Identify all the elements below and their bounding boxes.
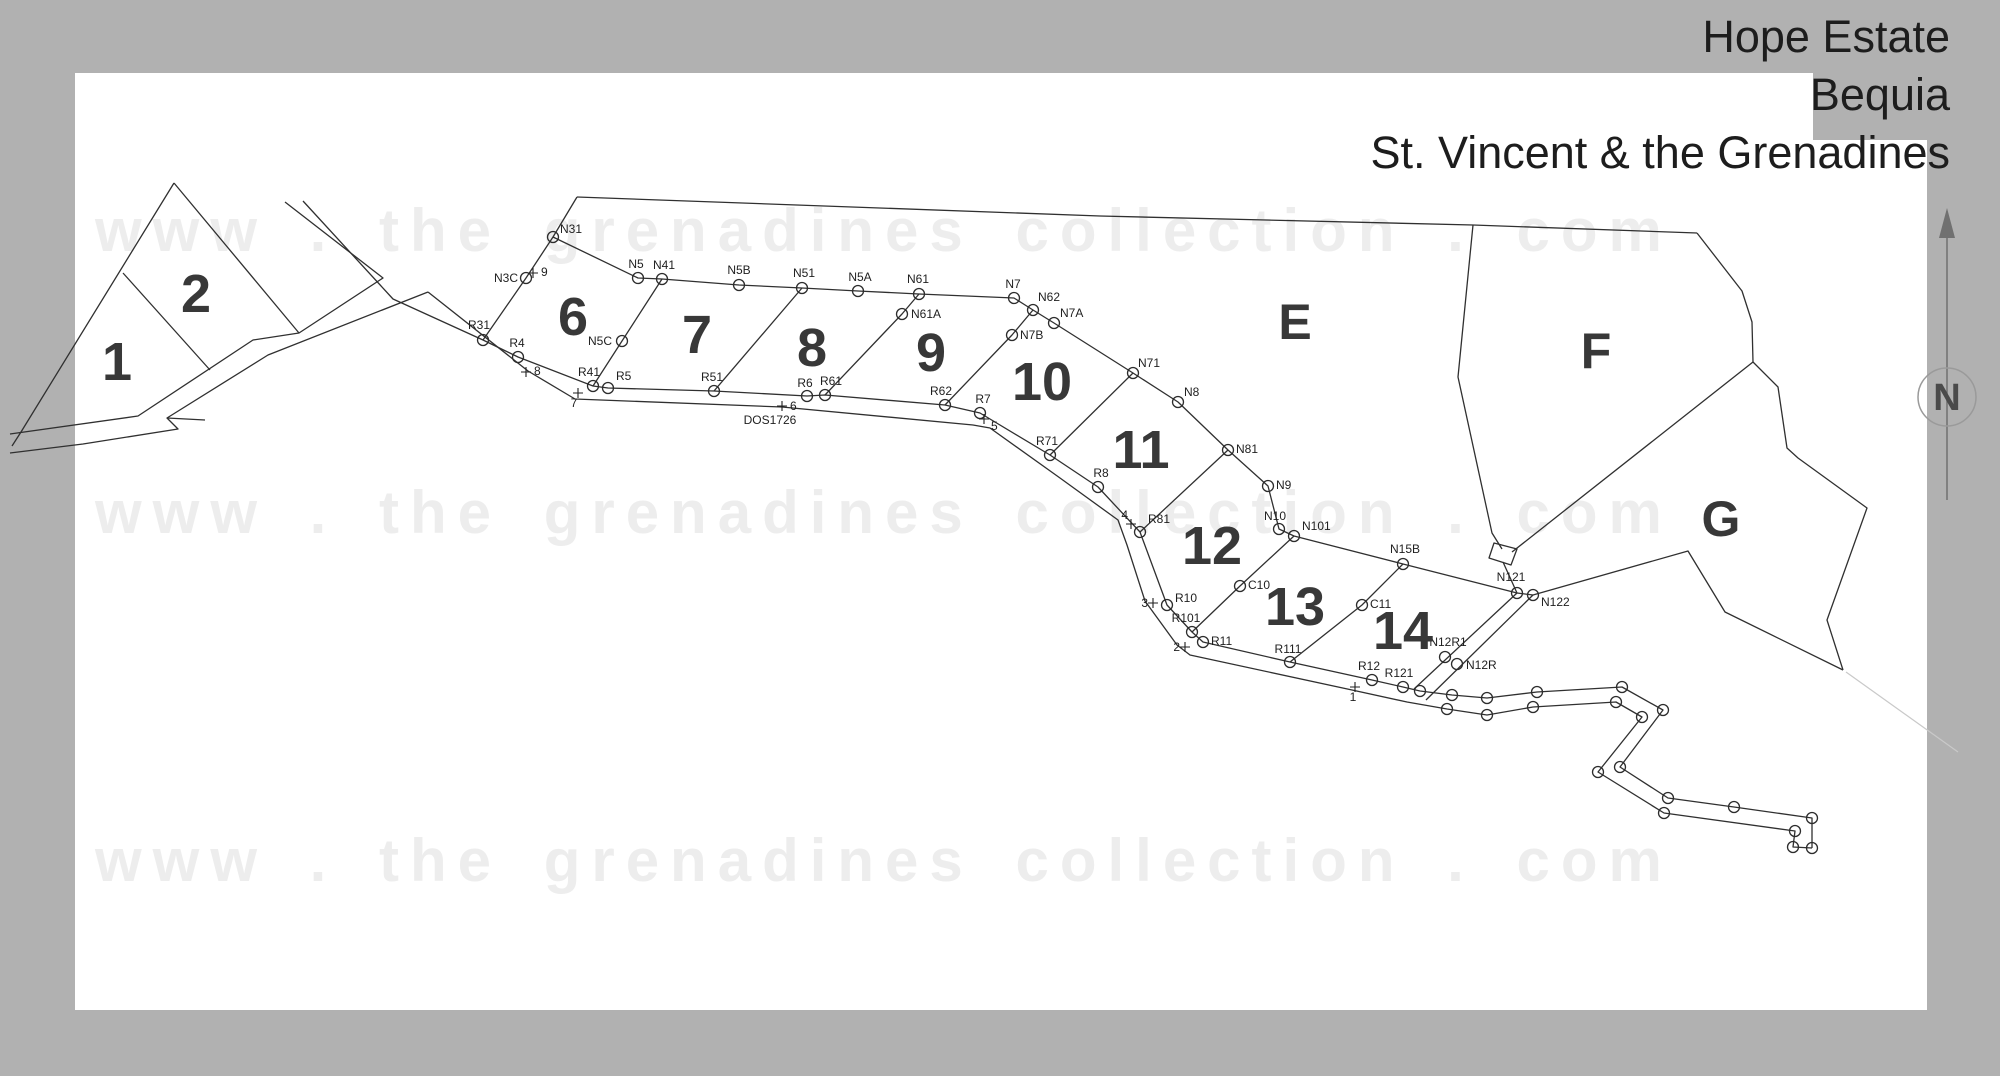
chainage-tick-icon <box>1180 642 1190 652</box>
survey-point-label: N51 <box>793 266 815 280</box>
lot-number: 12 <box>1182 516 1242 576</box>
survey-point-label: R6 <box>797 376 813 390</box>
survey-reference-label: DOS1726 <box>744 413 797 427</box>
survey-point-label: R51 <box>701 370 723 384</box>
chainage-tick-icon <box>777 401 787 411</box>
lot-number: 14 <box>1373 601 1433 661</box>
lot-number: 8 <box>797 318 827 378</box>
chainage-tick-icon <box>979 414 989 424</box>
area-g-east-boundary <box>1753 362 1867 670</box>
lot-number: 9 <box>916 323 946 383</box>
survey-point-label: N41 <box>653 258 675 272</box>
survey-point-label: N8 <box>1184 385 1200 399</box>
lot-number: 11 <box>1112 420 1169 480</box>
survey-point-label: N5C <box>588 334 612 348</box>
faint-shore-line <box>1846 672 1958 752</box>
chainage-tick-icon <box>521 367 531 377</box>
title-block: Hope Estate Bequia St. Vincent & the Gre… <box>1370 8 1950 182</box>
survey-point-label: R62 <box>930 384 952 398</box>
survey-point-label: R121 <box>1385 666 1414 680</box>
title-island-name: Bequia <box>1370 66 1950 124</box>
road-outer-edge-southwest <box>10 292 428 453</box>
survey-point-label: N5A <box>848 270 871 284</box>
plat-map-page: www . the grenadines collection . com ww… <box>0 0 2000 1076</box>
survey-point-label: N12R1 <box>1429 635 1467 649</box>
survey-point-label: R11 <box>1211 634 1232 648</box>
survey-point-label: R5 <box>616 369 632 383</box>
survey-point-label: N62 <box>1038 290 1060 304</box>
survey-point-label: N9 <box>1276 478 1292 492</box>
survey-point-label: N31 <box>560 222 582 236</box>
chainage-tick-label: 7 <box>571 396 578 410</box>
survey-point-label: N101 <box>1302 519 1331 533</box>
area-g-south-boundary <box>1533 551 1843 670</box>
chainage-tick-label: 9 <box>541 265 548 279</box>
survey-point-label: N5 <box>628 257 644 271</box>
survey-point-label: N15B <box>1390 542 1420 556</box>
survey-point-label: R7 <box>975 392 991 406</box>
north-arrow-head-icon <box>1939 208 1955 238</box>
lot1-west-boundary <box>12 183 174 446</box>
area-label: G <box>1702 491 1741 547</box>
survey-point-label: N7 <box>1005 277 1021 291</box>
lot7-8-divider <box>714 288 802 391</box>
survey-point-label: N61 <box>907 272 929 286</box>
survey-point-label: R10 <box>1175 591 1197 605</box>
chainage-tick-icon <box>528 268 538 278</box>
survey-point-label: N121 <box>1497 570 1526 584</box>
lot-number: 6 <box>558 287 588 347</box>
survey-point-label: N71 <box>1138 356 1160 370</box>
chainage-tick-label: 6 <box>790 399 797 413</box>
lot-number: 7 <box>682 305 712 365</box>
lot-number: 2 <box>181 264 211 324</box>
survey-points-layer <box>478 232 1818 854</box>
survey-point-label: R4 <box>509 336 525 350</box>
survey-point-label: R8 <box>1093 466 1109 480</box>
boundary-notch <box>1489 543 1517 565</box>
road-spur <box>167 418 205 420</box>
survey-point-label: R71 <box>1036 434 1058 448</box>
title-country-name: St. Vincent & the Grenadines <box>1370 124 1950 182</box>
title-estate-name: Hope Estate <box>1370 8 1950 66</box>
survey-point-marker <box>1452 659 1463 670</box>
survey-point-label: R12 <box>1358 659 1380 673</box>
survey-point-label: N12R <box>1466 658 1497 672</box>
road-lines <box>10 201 1812 848</box>
lot-number: 10 <box>1012 352 1072 412</box>
survey-point-label: R81 <box>1148 512 1170 526</box>
chainage-tick-label: 3 <box>1141 596 1148 610</box>
survey-point-label: N122 <box>1541 595 1570 609</box>
survey-point-label: N5B <box>727 263 750 277</box>
area-label: F <box>1581 323 1612 379</box>
lot1-2-boundaries <box>12 183 299 446</box>
estate-boundaries <box>577 197 1958 752</box>
top-boundary-line <box>577 197 1697 233</box>
northeast-corner-boundary <box>1697 233 1753 362</box>
survey-point-label: N7B <box>1020 328 1043 342</box>
north-arrow-label: N <box>1933 377 1960 419</box>
survey-point-label: N3C <box>494 271 518 285</box>
survey-point-label: N61A <box>911 307 941 321</box>
survey-point-label: R31 <box>468 318 490 332</box>
survey-point-label: R101 <box>1172 611 1201 625</box>
area-e-f-divider <box>1458 225 1502 549</box>
chainage-tick-label: 8 <box>534 364 541 378</box>
survey-point-label: N81 <box>1236 442 1258 456</box>
survey-point-label: N7A <box>1060 306 1083 320</box>
n121-n122-link <box>1517 593 1533 595</box>
lot-number: 1 <box>102 332 132 392</box>
north-point-chain <box>553 237 1517 593</box>
survey-point-label: R111 <box>1275 642 1302 656</box>
survey-point-label: N10 <box>1264 509 1286 523</box>
north-arrow: N <box>1918 208 1976 500</box>
chainage-tick-label: 1 <box>1350 690 1357 704</box>
lot-number: 13 <box>1265 577 1325 637</box>
chainage-tick-label: 5 <box>991 419 998 433</box>
survey-point-label: R41 <box>578 365 600 379</box>
area-label: E <box>1278 294 1311 350</box>
chainage-tick-label: 4 <box>1121 508 1128 522</box>
chainage-tick-label: 2 <box>1173 640 1180 654</box>
